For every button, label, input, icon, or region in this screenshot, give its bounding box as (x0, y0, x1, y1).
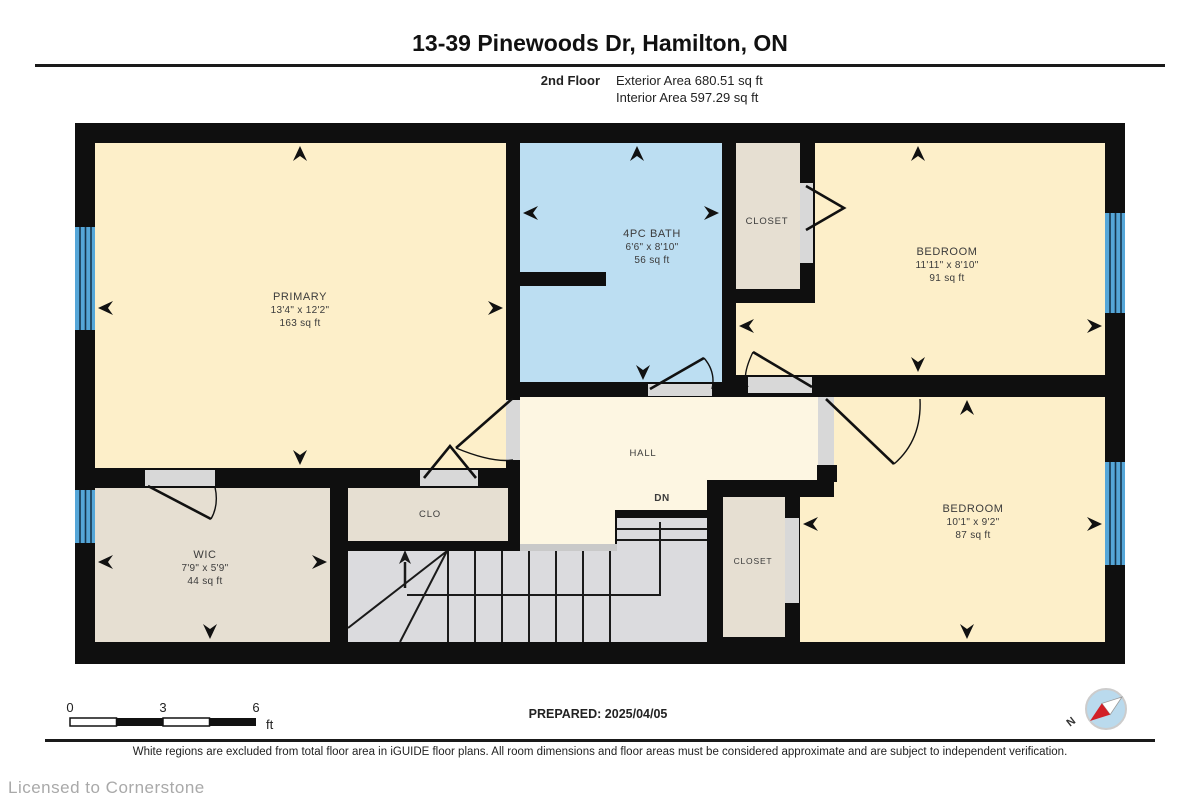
closet-top-label: CLOSET (746, 216, 789, 227)
hall-floor-tongue (520, 480, 615, 544)
scale-segment (210, 718, 257, 726)
stairs-edge-strip (520, 544, 617, 551)
bedroom1-label: BEDROOM (916, 246, 977, 258)
stairs-upper-floor (617, 518, 707, 551)
prepared-date: PREPARED: 2025/04/05 (448, 707, 748, 721)
scale-tick-6: 6 (252, 700, 259, 715)
floor-plan-svg: PRIMARY 13'4" x 12'2" 163 sq ft 4PC BATH… (0, 0, 1200, 805)
bedroom2-label: BEDROOM (942, 503, 1003, 515)
bath-label: 4PC BATH (623, 228, 681, 240)
wic-dims: 7'9" x 5'9" (181, 563, 228, 574)
license-text: Licensed to Cornerstone (8, 778, 205, 798)
bedroom2-window (1105, 462, 1125, 565)
primary-label: PRIMARY (273, 291, 327, 303)
bedroom1-floor (815, 143, 1105, 375)
primary-area: 163 sq ft (279, 318, 320, 329)
scale-bar: 0 3 6 ft (66, 700, 273, 732)
scale-segment (70, 718, 117, 726)
hall-label: HALL (630, 448, 657, 459)
bedroom2-area: 87 sq ft (955, 530, 990, 541)
scale-segment (163, 718, 210, 726)
bedroom2-door-stub (817, 465, 837, 482)
floor-plan-page: 13-39 Pinewoods Dr, Hamilton, ON 2nd Flo… (0, 0, 1200, 805)
wic-window (75, 490, 95, 543)
closet-top-jamb (800, 183, 813, 263)
bath-stub-wall (506, 272, 606, 286)
primary-dims: 13'4" x 12'2" (271, 305, 330, 316)
closet-bottom-jamb (785, 518, 799, 603)
bedroom2-floor-ext (800, 497, 834, 642)
hall-floor (520, 397, 818, 480)
bedroom1-dims: 11'11" x 8'10" (915, 260, 978, 271)
bedroom2-door-jamb (818, 397, 834, 465)
bedroom2-dims: 10'1" x 9'2" (947, 517, 1000, 528)
bedroom1-window (1105, 213, 1125, 313)
scale-tick-0: 0 (66, 700, 73, 715)
scale-unit: ft (266, 717, 274, 732)
bedroom1-area: 91 sq ft (929, 273, 964, 284)
scale-tick-3: 3 (159, 700, 166, 715)
wic-label: WIC (193, 549, 216, 561)
scale-segment (117, 718, 164, 726)
compass-north-label: N (1064, 715, 1078, 729)
wic-area: 44 sq ft (187, 576, 222, 587)
closet-bottom-floor (723, 497, 785, 637)
disclaimer-text: White regions are excluded from total fl… (0, 746, 1200, 758)
wic-door-jamb (145, 470, 215, 486)
compass-icon: N (1064, 689, 1126, 729)
bath-area: 56 sq ft (634, 255, 669, 266)
stairs-dn-label: DN (654, 493, 669, 504)
closet-bottom-label: CLOSET (734, 556, 773, 566)
stairs-floor (348, 551, 707, 642)
clo-label: CLO (419, 509, 441, 520)
bedroom1-door-jamb (748, 377, 812, 393)
primary-door-jamb (506, 400, 520, 460)
bath-room-floor (520, 143, 722, 382)
primary-window (75, 227, 95, 330)
footer-divider (45, 739, 1155, 742)
bath-dims: 6'6" x 8'10" (626, 242, 679, 253)
